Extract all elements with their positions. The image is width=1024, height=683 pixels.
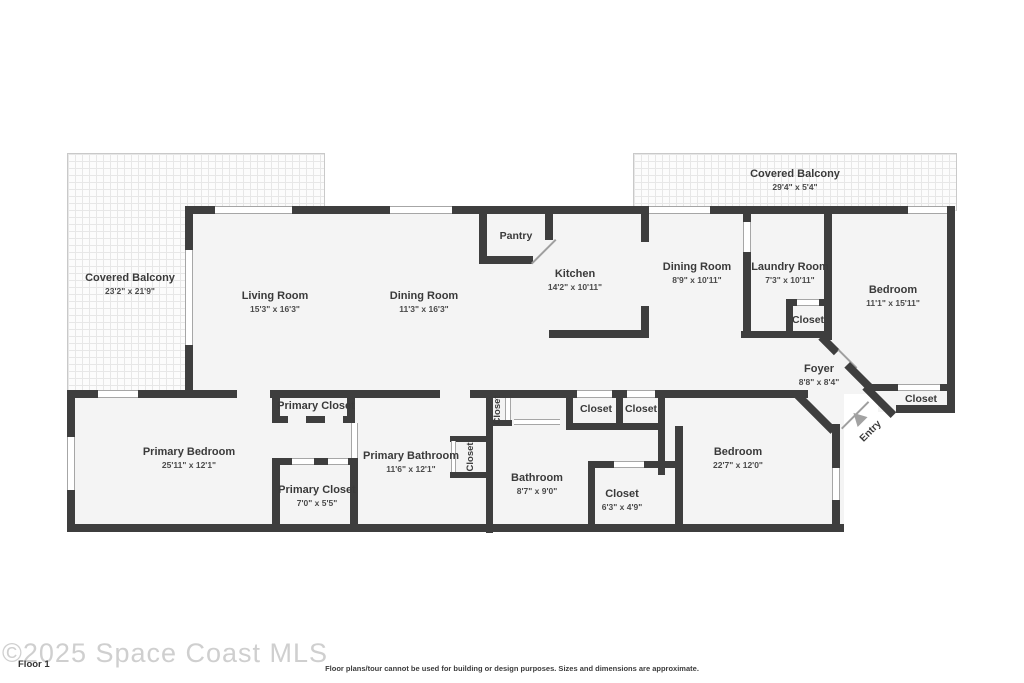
window-segment — [292, 458, 314, 465]
wall-segment — [641, 206, 649, 242]
window-segment — [577, 390, 612, 398]
window-segment — [451, 441, 456, 472]
wall-segment — [824, 206, 832, 340]
wall-segment — [486, 420, 512, 426]
wall-segment — [350, 458, 358, 528]
wall-segment — [185, 206, 955, 214]
floor-area-bottom — [71, 394, 844, 528]
window-segment — [505, 398, 511, 422]
window-segment — [98, 390, 138, 398]
wall-segment — [896, 405, 955, 413]
balcony-right — [633, 153, 957, 211]
window-segment — [743, 222, 751, 252]
door-opening — [440, 390, 470, 398]
window-segment — [351, 423, 358, 460]
window-segment — [215, 206, 292, 214]
wall-segment — [272, 458, 280, 528]
window-segment — [328, 458, 348, 465]
balcony-left-top — [67, 153, 325, 212]
floor-plan-canvas: Covered Balcony23'2" x 21'9" Covered Bal… — [0, 0, 1024, 683]
wall-segment — [675, 426, 683, 532]
window-segment — [832, 468, 840, 500]
door-opening — [288, 416, 306, 423]
window-segment — [908, 206, 948, 214]
wall-segment — [67, 524, 844, 532]
window-segment — [185, 250, 193, 345]
wall-segment — [566, 423, 665, 430]
door-opening — [237, 390, 270, 398]
wall-segment — [479, 256, 533, 264]
window-segment — [648, 206, 710, 214]
wall-segment — [741, 331, 788, 338]
window-segment — [67, 437, 75, 490]
floor-area-top — [189, 210, 951, 394]
window-segment — [898, 384, 940, 391]
window-segment — [614, 461, 644, 468]
balcony-left-side — [67, 210, 188, 393]
wall-segment — [545, 206, 553, 240]
wall-segment — [450, 472, 488, 478]
wall-segment — [486, 390, 493, 533]
entry-arrow-icon — [848, 408, 867, 427]
door-opening — [325, 416, 343, 423]
window-segment — [627, 390, 655, 398]
window-segment — [797, 299, 819, 306]
wall-segment — [67, 390, 808, 398]
disclaimer-text: Floor plans/tour cannot be used for buil… — [0, 664, 1024, 673]
wall-segment — [549, 330, 649, 338]
window-segment — [390, 206, 452, 214]
wall-segment — [479, 206, 487, 262]
wall-segment — [947, 206, 955, 413]
wall-segment — [588, 461, 595, 532]
window-segment — [514, 419, 560, 425]
